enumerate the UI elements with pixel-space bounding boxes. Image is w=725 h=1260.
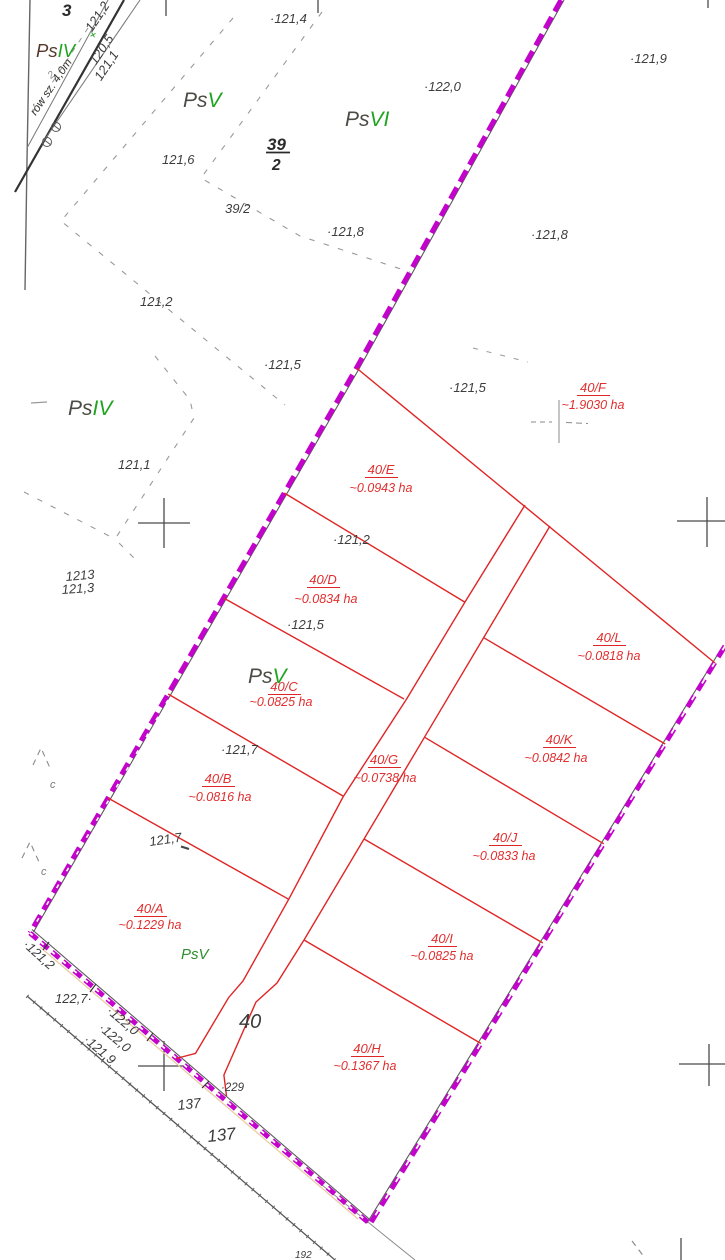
svg-text:~0.0818 ha: ~0.0818 ha (578, 649, 641, 663)
svg-text:·121,5: ·121,5 (449, 380, 487, 395)
svg-text:PsV: PsV (248, 665, 289, 688)
svg-text:~0.0943 ha: ~0.0943 ha (350, 481, 413, 495)
svg-text:2: 2 (271, 157, 281, 174)
svg-text:121,1: 121,1 (118, 457, 151, 472)
svg-text:·121,8: ·121,8 (531, 227, 569, 242)
svg-text:~0.1229 ha: ~0.1229 ha (119, 918, 182, 932)
svg-text:121,3: 121,3 (61, 580, 95, 597)
svg-text:·121,9: ·121,9 (630, 51, 667, 66)
svg-text:~0.0842 ha: ~0.0842 ha (525, 751, 588, 765)
svg-text:192: 192 (295, 1250, 312, 1260)
svg-text:~0.0833 ha: ~0.0833 ha (473, 849, 536, 863)
svg-text:121,2: 121,2 (140, 294, 173, 309)
svg-text:121,6: 121,6 (162, 152, 195, 167)
svg-text:~0.0825 ha: ~0.0825 ha (250, 695, 313, 709)
svg-text:40: 40 (239, 1011, 261, 1033)
svg-text:137: 137 (206, 1124, 237, 1146)
svg-text:~0.0816 ha: ~0.0816 ha (189, 790, 252, 804)
svg-text:3: 3 (62, 1, 72, 20)
svg-text:122,7·: 122,7· (55, 991, 92, 1006)
svg-text:PsVI: PsVI (345, 108, 390, 131)
svg-text:PsIV: PsIV (36, 40, 77, 61)
svg-text:·121,5: ·121,5 (287, 617, 325, 632)
svg-text:40/K: 40/K (546, 732, 574, 747)
svg-text:~0.0834 ha: ~0.0834 ha (295, 592, 358, 606)
svg-text:·121,4: ·121,4 (270, 11, 307, 26)
svg-text:·229: ·229 (221, 1082, 245, 1094)
svg-text:~0.1367 ha: ~0.1367 ha (334, 1059, 397, 1073)
svg-text:~1.9030 ha: ~1.9030 ha (562, 398, 625, 412)
svg-text:40/B: 40/B (205, 771, 232, 786)
svg-text:c: c (41, 866, 47, 878)
svg-text:·121,8: ·121,8 (327, 224, 365, 239)
svg-text:~0.0825 ha: ~0.0825 ha (411, 949, 474, 963)
svg-text:PsV: PsV (181, 946, 211, 963)
svg-text:~0.0738 ha: ~0.0738 ha (354, 771, 417, 785)
svg-text:40/F: 40/F (580, 380, 607, 395)
svg-text:·121,5: ·121,5 (264, 357, 302, 372)
svg-text:40/G: 40/G (370, 752, 398, 767)
svg-text:·122,0: ·122,0 (424, 79, 462, 94)
svg-text:39/2: 39/2 (225, 201, 251, 216)
svg-text:PsV: PsV (183, 89, 224, 112)
svg-text:PsIV: PsIV (68, 397, 114, 420)
svg-text:40/E: 40/E (368, 462, 395, 477)
svg-text:40/A: 40/A (137, 901, 164, 916)
svg-text:137: 137 (177, 1095, 203, 1113)
svg-text:40/L: 40/L (596, 630, 621, 645)
svg-text:·121,2: ·121,2 (333, 532, 371, 547)
svg-text:40/I: 40/I (431, 931, 453, 946)
svg-text:40/J: 40/J (493, 830, 518, 845)
svg-text:c: c (50, 779, 56, 791)
svg-text:40/H: 40/H (353, 1041, 381, 1056)
svg-text:39: 39 (267, 135, 286, 154)
svg-text:·121,7: ·121,7 (221, 742, 259, 757)
svg-text:40/D: 40/D (309, 572, 336, 587)
